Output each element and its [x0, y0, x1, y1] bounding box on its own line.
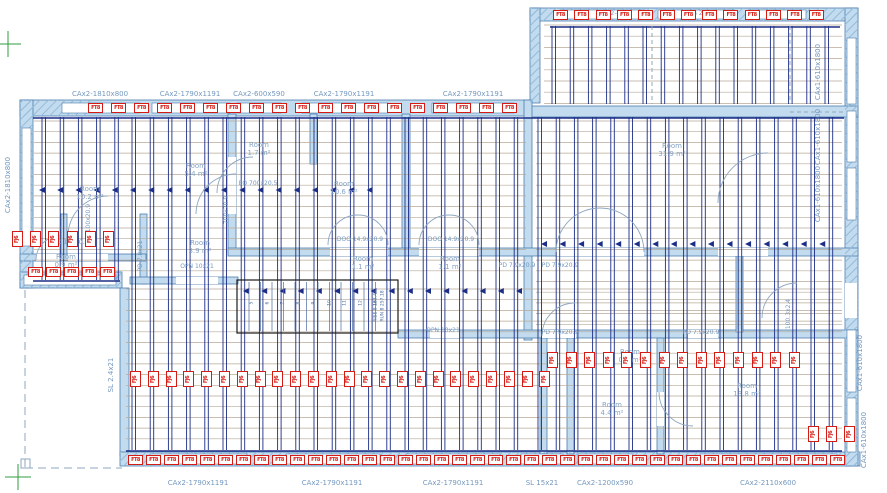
window-label: CAx2-2110x600	[740, 479, 796, 487]
fj-joist-tag: FJ6	[770, 352, 781, 368]
fj-joist-tag: FJ6	[308, 371, 319, 387]
door-label: OPN 10x21	[180, 263, 214, 271]
ft8-truss-tag: FT8	[574, 10, 589, 20]
ft8-truss-tag: FT8	[502, 103, 517, 113]
window-label: CAx1-610x1800	[814, 44, 822, 100]
fj-joist-tag: FJ6	[379, 371, 390, 387]
ft8-truss-tag: FT8	[226, 103, 241, 113]
ft8-truss-tag: FT8	[740, 455, 755, 465]
fj-joist-tag: FJ6	[103, 231, 114, 247]
ft8-truss-tag: FT8	[830, 455, 845, 465]
fj-joist-tag: FJ6	[148, 371, 159, 387]
window-label: CAx2-1790x1191	[314, 90, 375, 98]
ft8-truss-tag: FT8	[578, 455, 593, 465]
fj-joist-tag: FJ6	[12, 231, 23, 247]
ft8-truss-tag: FT8	[702, 10, 717, 20]
ft8-truss-tag: FT8	[794, 455, 809, 465]
door-label: DOO 14.9x20.9	[337, 236, 383, 244]
ft8-truss-tag: FT8	[614, 455, 629, 465]
ft8-truss-tag: FT8	[617, 10, 632, 20]
door-label: PD 7.9x20.9	[542, 329, 579, 337]
ft8-truss-tag: FT8	[398, 455, 413, 465]
door-label: DOO 14.9x20.9	[428, 236, 474, 244]
window-label: SL 15x21	[526, 479, 559, 487]
fj-joist-tag: FJ6	[696, 352, 707, 368]
fj-joist-tag: FJ6	[255, 371, 266, 387]
ft8-truss-tag: FT8	[249, 103, 264, 113]
ft8-truss-tag: FT8	[488, 455, 503, 465]
ft8-truss-tag: FT8	[470, 455, 485, 465]
fj-joist-tag: FJ6	[67, 231, 78, 247]
ft8-truss-tag: FT8	[524, 455, 539, 465]
ft8-truss-tag: FT8	[638, 10, 653, 20]
ft8-truss-tag: FT8	[203, 103, 218, 113]
fj-joist-tag: FJ6	[397, 371, 408, 387]
ft8-truss-tag: FT8	[681, 10, 696, 20]
ft8-truss-tag: FT8	[128, 455, 143, 465]
ft8-truss-tag: FT8	[82, 267, 97, 277]
stair-number: 9	[312, 302, 317, 305]
ft8-truss-tag: FT8	[452, 455, 467, 465]
window-label: CAx1-610x1800	[856, 335, 864, 391]
ft8-truss-tag: FT8	[434, 455, 449, 465]
fj-joist-tag: FJ6	[166, 371, 177, 387]
fj-joist-tag: FJ6	[344, 371, 355, 387]
stair-number: 13	[374, 300, 379, 306]
fj-joist-tag: FJ6	[844, 426, 855, 442]
ft8-truss-tag: FT8	[506, 455, 521, 465]
window-label: CAx2-1200x590	[577, 479, 633, 487]
door-label: PD 7.9x20.9	[683, 329, 720, 337]
fj-joist-tag: FJ6	[326, 371, 337, 387]
fj-joist-tag: FJ6	[752, 352, 763, 368]
fj-joist-tag: FJ6	[433, 371, 444, 387]
fj-joist-tag: FJ6	[450, 371, 461, 387]
door-label: 100.3x2.4	[785, 299, 793, 329]
ft8-truss-tag: FT8	[272, 103, 287, 113]
ft8-truss-tag: FT8	[596, 455, 611, 465]
ft8-truss-tag: FT8	[758, 455, 773, 465]
ft8-truss-tag: FT8	[88, 103, 103, 113]
ft8-truss-tag: FT8	[410, 103, 425, 113]
ft8-truss-tag: FT8	[380, 455, 395, 465]
ft8-truss-tag: FT8	[318, 103, 333, 113]
stair-note: RISE 8 163.47	[374, 290, 379, 322]
fj-joist-tag: FJ6	[640, 352, 651, 368]
fj-joist-tag: FJ6	[808, 426, 819, 442]
fj-joist-tag: FJ6	[789, 352, 800, 368]
fj-joist-tag: FJ6	[290, 371, 301, 387]
room-label: Room10.2 m²	[76, 185, 103, 201]
ft8-truss-tag: FT8	[723, 10, 738, 20]
ft8-truss-tag: FT8	[686, 455, 701, 465]
fj-joist-tag: FJ6	[603, 352, 614, 368]
ft8-truss-tag: FT8	[787, 10, 802, 20]
fj-joist-tag: FJ6	[547, 352, 558, 368]
room-label: Room1.1 m²	[352, 255, 375, 271]
fj-joist-tag: FJ6	[733, 352, 744, 368]
ft8-truss-tag: FT8	[416, 455, 431, 465]
ft8-truss-tag: FT8	[64, 267, 79, 277]
ft8-truss-tag: FT8	[704, 455, 719, 465]
window-label: CAx2-600x590	[233, 90, 285, 98]
ft8-truss-tag: FT8	[479, 103, 494, 113]
ft8-truss-tag: FT8	[100, 267, 115, 277]
window-label: CAx2-1790x1191	[423, 479, 484, 487]
door-label: OPN 10x21	[426, 327, 460, 335]
ft8-truss-tag: FT8	[364, 103, 379, 113]
fj-joist-tag: FJ6	[621, 352, 632, 368]
ft8-truss-tag: FT8	[812, 455, 827, 465]
fj-joist-tag: FJ6	[659, 352, 670, 368]
stair-number: 5	[250, 302, 255, 305]
ft8-truss-tag: FT8	[553, 10, 568, 20]
room-label: Room13.8 m²	[733, 382, 760, 398]
ft8-truss-tag: FT8	[146, 455, 161, 465]
ft8-truss-tag: FT8	[180, 103, 195, 113]
room-label: Room3.9 m²	[189, 239, 212, 255]
door-label: EO 700x20.5	[239, 180, 278, 188]
window-label: CAx1-610x1800	[814, 109, 822, 165]
window-label: CAx2-1790x1191	[443, 90, 504, 98]
ft8-truss-tag: FT8	[766, 10, 781, 20]
ft8-truss-tag: FT8	[182, 455, 197, 465]
stair-number: 12	[358, 300, 363, 306]
window-label: CAx2-1790x1191	[302, 479, 363, 487]
fj-joist-tag: FJ6	[272, 371, 283, 387]
window-label: CAx2-1810x800	[72, 90, 128, 98]
floor-plan-canvas[interactable]: CAx2-1810x800CAx2-1790x1191CAx2-600x590C…	[0, 0, 887, 493]
fj-joist-tag: FJ6	[468, 371, 479, 387]
fj-joist-tag: FJ6	[584, 352, 595, 368]
ft8-truss-tag: FT8	[362, 455, 377, 465]
ft8-truss-tag: FT8	[650, 455, 665, 465]
stair-number: 8	[296, 302, 301, 305]
ft8-truss-tag: FT8	[111, 103, 126, 113]
fj-joist-tag: FJ6	[566, 352, 577, 368]
door-label: PD 7.9x20.9	[542, 262, 579, 270]
window-label: CAx1-610x1800	[814, 166, 822, 222]
stair-number: 7	[281, 302, 286, 305]
fj-joist-tag: FJ6	[522, 371, 533, 387]
room-label: Room31.9 m²	[658, 142, 685, 158]
fj-joist-tag: FJ6	[714, 352, 725, 368]
ft8-truss-tag: FT8	[456, 103, 471, 113]
room-label: Room10.6 m²	[330, 180, 357, 196]
fj-joist-tag: FJ6	[48, 231, 59, 247]
window-label: CAx2-1790x1191	[160, 90, 221, 98]
ft8-truss-tag: FT8	[236, 455, 251, 465]
fj-joist-tag: FJ6	[677, 352, 688, 368]
ft8-truss-tag: FT8	[164, 455, 179, 465]
ft8-truss-tag: FT8	[134, 103, 149, 113]
ft8-truss-tag: FT8	[596, 10, 611, 20]
ft8-truss-tag: FT8	[46, 267, 61, 277]
fj-joist-tag: FJ6	[30, 231, 41, 247]
ft8-truss-tag: FT8	[28, 267, 43, 277]
ft8-truss-tag: FT8	[560, 455, 575, 465]
ft8-truss-tag: FT8	[809, 10, 824, 20]
fj-joist-tag: FJ6	[130, 371, 141, 387]
fj-joist-tag: FJ6	[219, 371, 230, 387]
ft8-truss-tag: FT8	[344, 455, 359, 465]
window-label: CAx1-610x1800	[860, 412, 868, 468]
ft8-truss-tag: FT8	[341, 103, 356, 113]
ft8-truss-tag: FT8	[200, 455, 215, 465]
fj-joist-tag: FJ6	[539, 371, 550, 387]
fj-joist-tag: FJ6	[504, 371, 515, 387]
stair-number: 10	[327, 300, 332, 306]
ft8-truss-tag: FT8	[272, 455, 287, 465]
ft8-truss-tag: FT8	[157, 103, 172, 113]
fj-joist-tag: FJ6	[361, 371, 372, 387]
ft8-truss-tag: FT8	[218, 455, 233, 465]
ft8-truss-tag: FT8	[308, 455, 323, 465]
fj-joist-tag: FJ6	[415, 371, 426, 387]
stair-number: 11	[343, 300, 348, 306]
fj-joist-tag: FJ6	[486, 371, 497, 387]
room-label: Room4.4 m²	[601, 401, 624, 417]
fj-joist-tag: FJ6	[183, 371, 194, 387]
fj-joist-tag: FJ6	[85, 231, 96, 247]
ft8-truss-tag: FT8	[290, 455, 305, 465]
room-label: Room1.1 m²	[439, 255, 462, 271]
ft8-truss-tag: FT8	[722, 455, 737, 465]
ft8-truss-tag: FT8	[295, 103, 310, 113]
fj-joist-tag: FJ6	[826, 426, 837, 442]
ft8-truss-tag: FT8	[632, 455, 647, 465]
ft8-truss-tag: FT8	[433, 103, 448, 113]
window-label: CAx2-1810x800	[4, 157, 12, 213]
ft8-truss-tag: FT8	[776, 455, 791, 465]
room-label: Room5.4 m²	[185, 162, 208, 178]
ft8-truss-tag: FT8	[387, 103, 402, 113]
fj-joist-tag: FJ6	[237, 371, 248, 387]
window-label: SL 2.4x21	[107, 358, 115, 393]
ft8-truss-tag: FT8	[326, 455, 341, 465]
ft8-truss-tag: FT8	[254, 455, 269, 465]
door-label: PD 7.9x20.9	[499, 262, 536, 270]
ft8-truss-tag: FT8	[668, 455, 683, 465]
stair-number: 6	[265, 302, 270, 305]
fj-joist-tag: FJ6	[201, 371, 212, 387]
ft8-truss-tag: FT8	[542, 455, 557, 465]
stair-note: RUN 8 257.18	[381, 290, 386, 321]
annotations-layer: CAx2-1810x800CAx2-1790x1191CAx2-600x590C…	[0, 0, 887, 493]
ft8-truss-tag: FT8	[660, 10, 675, 20]
ft8-truss-tag: FT8	[745, 10, 760, 20]
door-label: 700x20.9	[223, 196, 231, 224]
door-label: PD 7.8x21	[137, 241, 145, 272]
window-label: CAx2-1790x1191	[168, 479, 229, 487]
room-label: Room1.7 m²	[248, 141, 271, 157]
